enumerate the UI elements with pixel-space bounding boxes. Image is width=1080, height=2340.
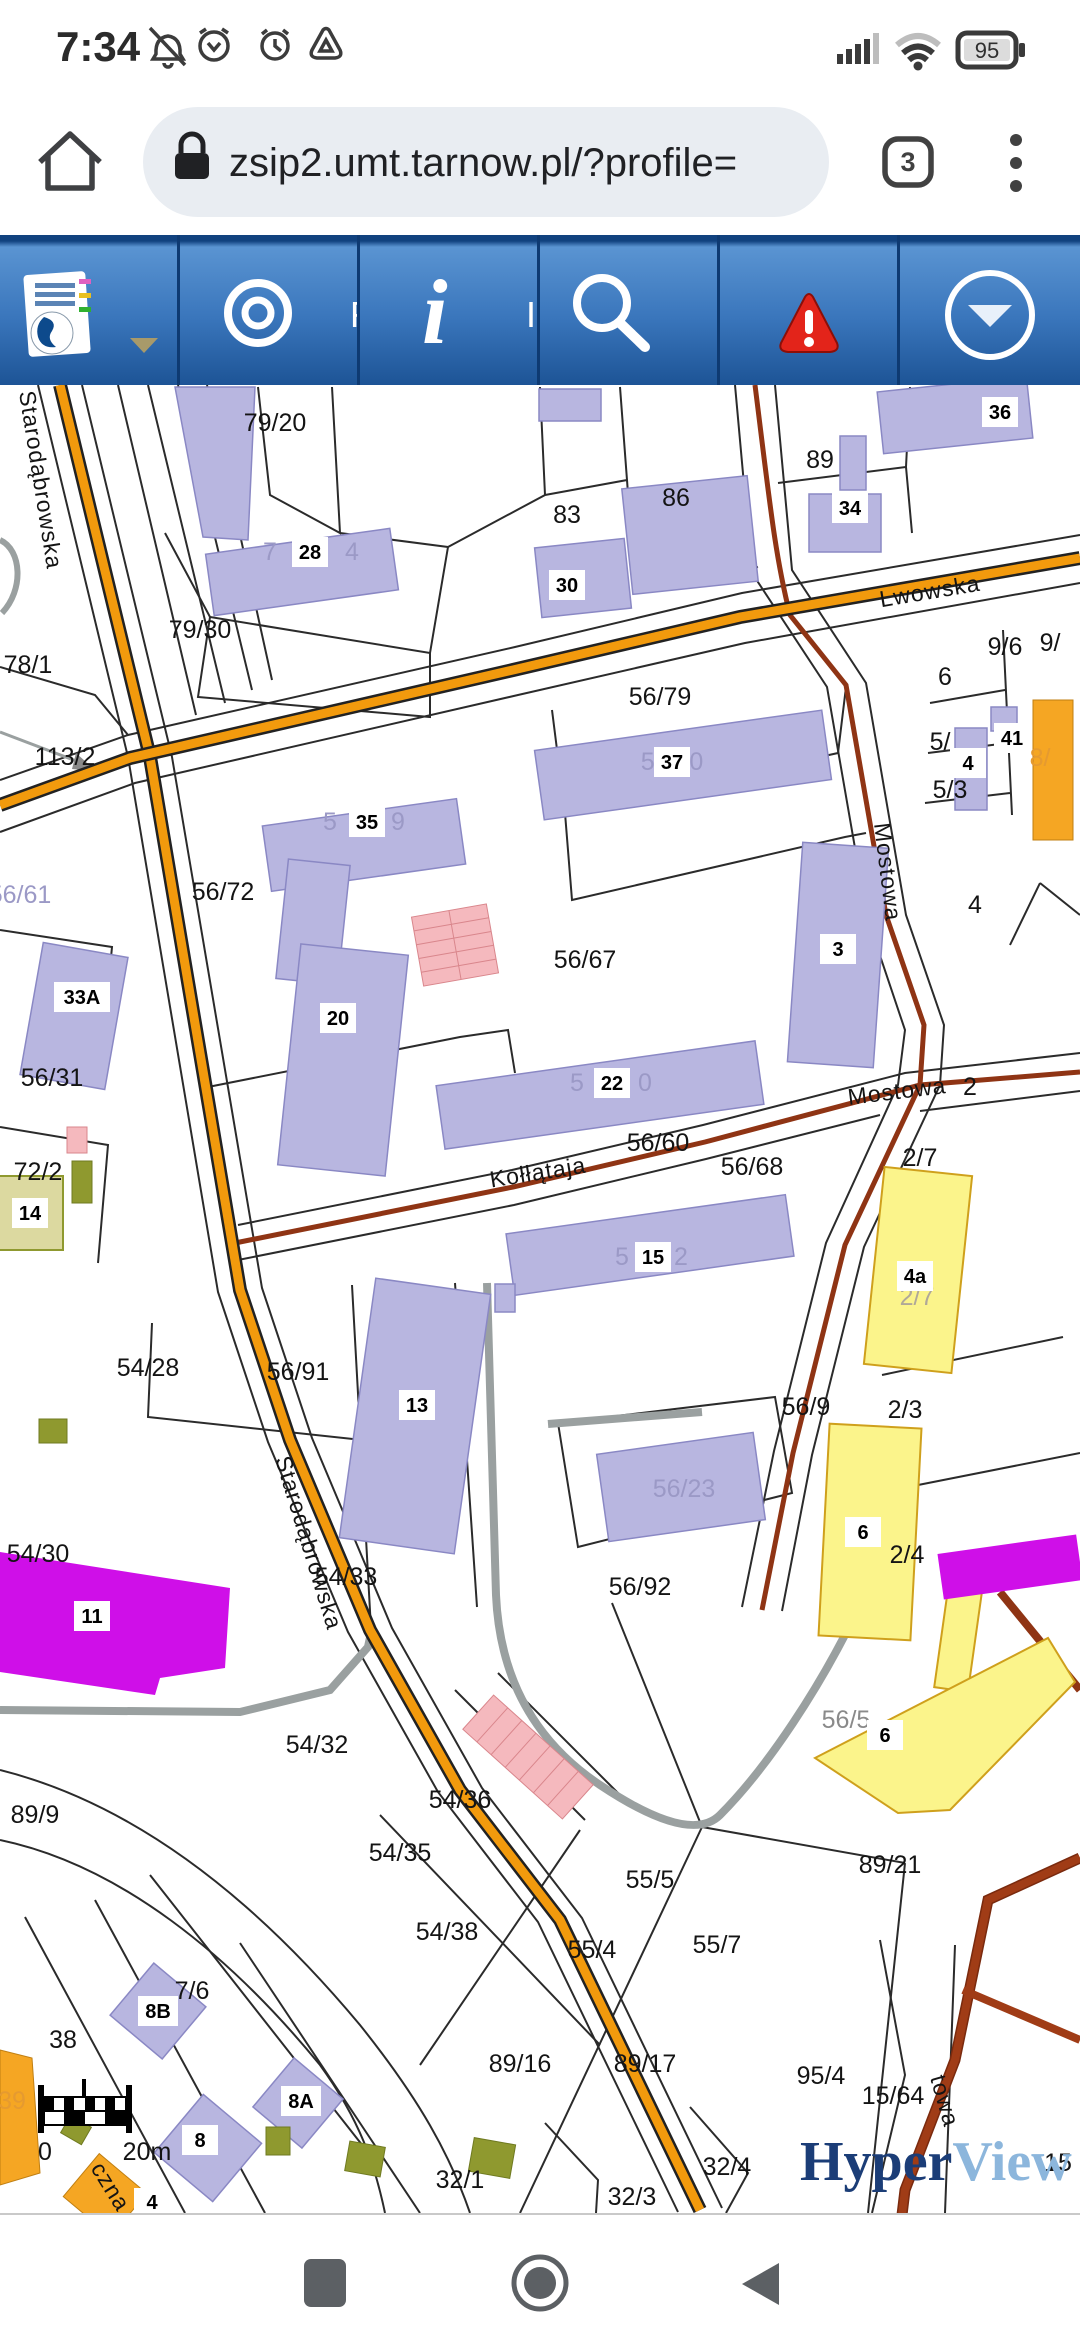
svg-text:72/2: 72/2 bbox=[14, 1158, 63, 1186]
svg-text:13: 13 bbox=[406, 1395, 428, 1417]
svg-text:54/35: 54/35 bbox=[369, 1839, 432, 1867]
svg-text:9/: 9/ bbox=[1040, 629, 1061, 657]
home-nav-button[interactable] bbox=[514, 2257, 566, 2309]
svg-text:79/30: 79/30 bbox=[169, 616, 232, 644]
svg-text:7/6: 7/6 bbox=[175, 1977, 210, 2005]
svg-text:32/4: 32/4 bbox=[703, 2153, 752, 2181]
wifi-icon bbox=[897, 36, 939, 71]
info-button[interactable]: i I bbox=[360, 235, 540, 385]
svg-text:8A: 8A bbox=[288, 2091, 314, 2113]
status-bar: 7:34 bbox=[0, 0, 1080, 90]
svg-text:113/2: 113/2 bbox=[35, 743, 96, 771]
svg-text:4a: 4a bbox=[904, 1266, 927, 1288]
back-button[interactable] bbox=[742, 2263, 779, 2305]
svg-text:55/7: 55/7 bbox=[693, 1931, 742, 1959]
svg-text:54/28: 54/28 bbox=[117, 1354, 180, 1382]
svg-text:54/32: 54/32 bbox=[286, 1731, 349, 1759]
scale-distance: 20m bbox=[123, 2138, 172, 2166]
svg-text:89: 89 bbox=[806, 446, 834, 474]
tab-counter[interactable]: 3 bbox=[885, 139, 931, 185]
svg-text:4: 4 bbox=[962, 753, 974, 775]
map-canvas[interactable]: 7 4 56/80 5 9 56/61 5 0 5 2 56/23 2/7 56… bbox=[0, 385, 1080, 2213]
svg-text:36: 36 bbox=[989, 402, 1011, 424]
svg-text:56/72: 56/72 bbox=[192, 878, 255, 906]
svg-text:15/64: 15/64 bbox=[862, 2082, 925, 2110]
svg-text:35: 35 bbox=[356, 812, 378, 834]
data-saver-icon bbox=[311, 29, 341, 59]
svg-text:9: 9 bbox=[391, 808, 405, 836]
url-bar[interactable]: zsip2.umt.tarnow.pl/?profile= bbox=[143, 107, 829, 217]
map-toolbar: F i I bbox=[0, 235, 1080, 385]
svg-text:20: 20 bbox=[327, 1008, 349, 1030]
warning-icon bbox=[780, 294, 837, 352]
svg-text:56/92: 56/92 bbox=[609, 1573, 672, 1601]
svg-text:3: 3 bbox=[900, 147, 915, 177]
home-icon[interactable] bbox=[40, 134, 100, 188]
svg-text:8/: 8/ bbox=[1030, 744, 1051, 772]
svg-text:6: 6 bbox=[938, 663, 952, 691]
menu-kebab-icon[interactable] bbox=[1010, 134, 1022, 192]
clock-time: 7:34 bbox=[56, 23, 141, 70]
svg-text:33A: 33A bbox=[64, 987, 101, 1009]
svg-text:4: 4 bbox=[345, 538, 359, 566]
svg-text:56/67: 56/67 bbox=[554, 946, 617, 974]
alarm-icon bbox=[262, 30, 288, 59]
svg-text:56/61: 56/61 bbox=[0, 881, 51, 909]
svg-text:55/5: 55/5 bbox=[626, 1866, 675, 1894]
bedtime-clock-icon bbox=[200, 29, 228, 60]
svg-text:5/: 5/ bbox=[930, 728, 951, 756]
svg-text:9/6: 9/6 bbox=[988, 633, 1023, 661]
svg-text:5: 5 bbox=[615, 1243, 629, 1271]
target-icon bbox=[228, 283, 288, 343]
svg-text:4: 4 bbox=[146, 2192, 158, 2213]
chevron-down-circle-icon bbox=[948, 273, 1032, 357]
signal-icon bbox=[837, 33, 879, 64]
battery-percent: 95 bbox=[975, 38, 999, 63]
svg-text:89/21: 89/21 bbox=[859, 1851, 922, 1879]
svg-text:56/31: 56/31 bbox=[21, 1064, 84, 1092]
svg-text:54/36: 54/36 bbox=[429, 1786, 492, 1814]
svg-text:89/17: 89/17 bbox=[614, 2050, 677, 2078]
svg-text:2/7: 2/7 bbox=[903, 1144, 938, 1172]
svg-text:89/16: 89/16 bbox=[489, 2050, 552, 2078]
svg-text:11: 11 bbox=[81, 1606, 102, 1628]
svg-text:56/60: 56/60 bbox=[627, 1129, 690, 1157]
svg-text:54/30: 54/30 bbox=[7, 1540, 70, 1568]
lock-icon bbox=[175, 134, 209, 179]
layers-dropdown-arrow bbox=[130, 338, 158, 353]
svg-text:0: 0 bbox=[638, 1069, 652, 1097]
locate-button[interactable]: F bbox=[180, 235, 360, 385]
browser-bar: zsip2.umt.tarnow.pl/?profile= 3 bbox=[0, 90, 1080, 235]
layers-button[interactable] bbox=[0, 235, 180, 385]
svg-text:2: 2 bbox=[963, 1073, 977, 1101]
svg-text:2: 2 bbox=[674, 1243, 688, 1271]
svg-text:54/33: 54/33 bbox=[315, 1563, 378, 1591]
svg-text:37: 37 bbox=[661, 752, 683, 774]
layers-legend-icon bbox=[23, 271, 91, 357]
svg-text:8B: 8B bbox=[145, 2001, 171, 2023]
svg-text:56/9: 56/9 bbox=[782, 1393, 831, 1421]
svg-text:55/4: 55/4 bbox=[568, 1936, 617, 1964]
svg-text:30: 30 bbox=[556, 575, 578, 597]
svg-text:56/79: 56/79 bbox=[629, 683, 692, 711]
svg-text:6: 6 bbox=[857, 1522, 868, 1544]
search-button[interactable] bbox=[540, 235, 720, 385]
svg-text:34: 34 bbox=[839, 498, 862, 520]
svg-text:6: 6 bbox=[879, 1725, 890, 1747]
svg-text:15: 15 bbox=[642, 1247, 664, 1269]
svg-text:32/3: 32/3 bbox=[608, 2183, 657, 2211]
notifications-muted-icon bbox=[150, 28, 185, 67]
svg-text:38: 38 bbox=[49, 2026, 77, 2054]
svg-text:54/38: 54/38 bbox=[416, 1918, 479, 1946]
svg-text:41: 41 bbox=[1001, 728, 1023, 750]
hyperview-watermark: HyperView bbox=[800, 2131, 1072, 2193]
svg-text:4: 4 bbox=[968, 891, 982, 919]
svg-text:22: 22 bbox=[601, 1073, 623, 1095]
svg-text:28: 28 bbox=[299, 542, 321, 564]
scale-zero: 0 bbox=[38, 2138, 52, 2166]
android-nav-bar bbox=[0, 2213, 1080, 2340]
svg-text:5/3: 5/3 bbox=[933, 776, 968, 804]
svg-text:14: 14 bbox=[19, 1203, 42, 1225]
svg-text:79/20: 79/20 bbox=[244, 409, 307, 437]
svg-text:56/91: 56/91 bbox=[267, 1358, 330, 1386]
clipped-label: I bbox=[526, 294, 536, 335]
svg-text:2/3: 2/3 bbox=[888, 1396, 923, 1424]
svg-text:95/4: 95/4 bbox=[797, 2062, 846, 2090]
svg-text:83: 83 bbox=[553, 501, 581, 529]
svg-text:56/23: 56/23 bbox=[653, 1475, 716, 1503]
svg-text:78/1: 78/1 bbox=[4, 651, 53, 679]
svg-text:2/4: 2/4 bbox=[890, 1541, 925, 1569]
svg-text:32/1: 32/1 bbox=[436, 2166, 485, 2194]
svg-text:56/5: 56/5 bbox=[822, 1706, 871, 1734]
svg-text:39: 39 bbox=[0, 2087, 26, 2115]
svg-text:5: 5 bbox=[323, 808, 337, 836]
svg-text:86: 86 bbox=[662, 484, 690, 512]
search-icon bbox=[577, 278, 645, 347]
phone-screen: 7:34 bbox=[0, 0, 1080, 2340]
clipped-label: F bbox=[350, 294, 357, 335]
map-viewport: 7 4 56/80 5 9 56/61 5 0 5 2 56/23 2/7 56… bbox=[0, 385, 1080, 2213]
info-icon: i bbox=[422, 261, 448, 363]
svg-text:89/9: 89/9 bbox=[11, 1801, 60, 1829]
url-text[interactable]: zsip2.umt.tarnow.pl/?profile= bbox=[229, 141, 804, 186]
recents-button[interactable] bbox=[304, 2259, 346, 2307]
svg-text:5: 5 bbox=[570, 1069, 584, 1097]
svg-text:3: 3 bbox=[832, 939, 843, 961]
alerts-button[interactable] bbox=[720, 235, 900, 385]
expand-button[interactable] bbox=[900, 235, 1080, 385]
battery-icon: 95 bbox=[958, 33, 1025, 67]
svg-text:7: 7 bbox=[263, 538, 277, 566]
svg-text:8: 8 bbox=[194, 2130, 205, 2152]
svg-text:56/68: 56/68 bbox=[721, 1153, 784, 1181]
